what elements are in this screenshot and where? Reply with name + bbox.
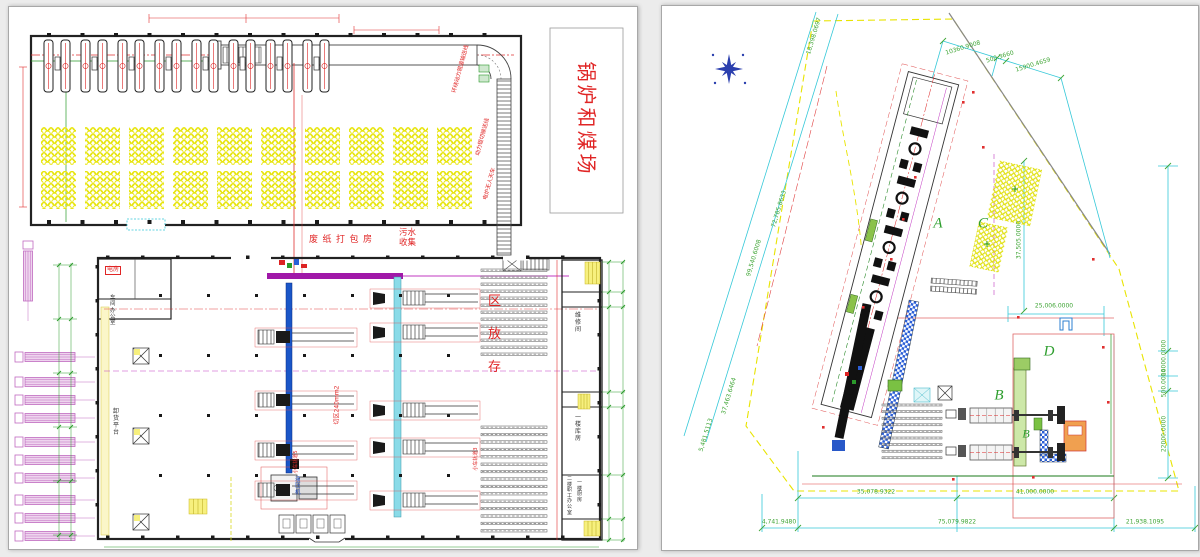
dim-37505: 37,505.0000 <box>1016 221 1023 259</box>
dim-4741: 4,741.9480 <box>762 519 796 526</box>
stair-icon <box>584 521 600 536</box>
stair-icon <box>585 262 600 284</box>
production-building <box>98 256 600 543</box>
green-dimension-lines <box>53 260 625 547</box>
site-plan-linework <box>662 6 1198 550</box>
zone-d-label: D <box>1044 344 1055 361</box>
dim-21938: 21,938.1095 <box>1126 519 1164 526</box>
storage-racks <box>481 269 547 532</box>
stair-icon <box>189 499 207 514</box>
zone-b-label: B <box>994 388 1003 405</box>
dim-500b: 500.0000 <box>1161 369 1168 398</box>
main-production-building <box>812 64 968 427</box>
left-drawing-sheet: 锅炉和煤场 废纸打包房 污水收集 区放存 切区240mm2 小车轨道5 小车轨道… <box>8 6 638 550</box>
top-machine-row <box>44 40 329 92</box>
zone-c-label: C <box>978 216 988 233</box>
dock-lifts <box>133 348 149 530</box>
zone-a-label: A <box>933 216 942 233</box>
road-centerline <box>757 66 827 346</box>
right-drawing-sheet: A C D B B 18,398.0697 10360.9008 500.366… <box>661 5 1199 551</box>
dim-25006: 25,006.0000 <box>1035 303 1073 310</box>
dim-22000: 22000.0000 <box>1161 416 1168 452</box>
dim-41000: 41,000.0000 <box>1016 489 1054 496</box>
north-arrow-icon <box>712 54 746 84</box>
zone-b2-label: B <box>1022 427 1029 442</box>
cad-viewer-canvas: 锅炉和煤场 废纸打包房 污水收集 区放存 切区240mm2 小车轨道5 小车轨道… <box>0 0 1200 557</box>
dim-35078: 35,078.9322 <box>857 489 895 496</box>
boiler-coal-yard-box <box>550 28 623 213</box>
dim-75079: 75,079.9822 <box>938 519 976 526</box>
coal-pile-patch-2 <box>969 221 1008 272</box>
road-edge <box>836 91 862 256</box>
coil-storage-clusters <box>41 127 472 209</box>
twin-conveyors <box>930 278 977 294</box>
toilet-stalls <box>279 515 345 533</box>
factory-plan-linework <box>9 7 637 549</box>
hopper-icon <box>1060 318 1072 330</box>
pulp-line <box>946 406 1065 424</box>
coal-pile-patch <box>987 161 1042 227</box>
stair-icon <box>578 394 590 409</box>
truck-vertical <box>23 241 33 321</box>
truck-docks <box>15 241 95 541</box>
